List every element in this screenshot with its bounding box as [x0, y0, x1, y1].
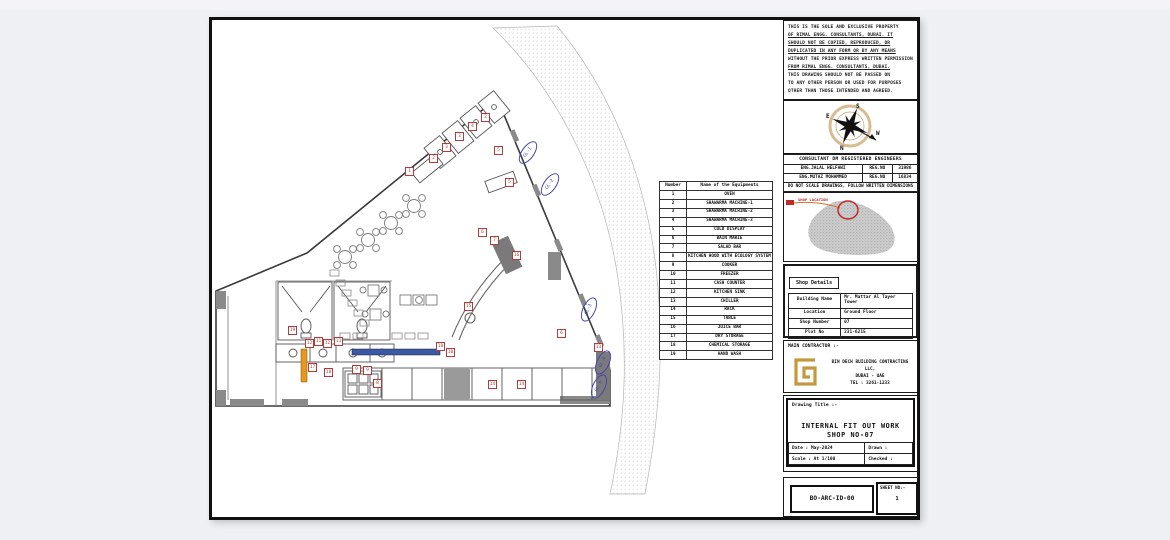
consultant-row: ENG.MUTAZ MOHAMMEDREG.NO16834: [784, 173, 918, 182]
equipment-name: JUICE BAR: [687, 324, 773, 333]
equipment-tag: 11: [314, 337, 323, 346]
equipment-tag: 5: [505, 178, 514, 187]
engineer-name: ENG.JALAL HELFAWI: [784, 164, 863, 173]
equipment-number: 14: [660, 306, 687, 315]
equipment-row: 13CHILLER: [660, 297, 773, 306]
equipment-tag: 12: [323, 339, 332, 348]
consultant-row: ENG.JALAL HELFAWIREG.NO31986: [784, 164, 918, 173]
shop-detail-value: Ground Floor: [841, 308, 913, 318]
equipment-name: SALAD BAR: [687, 244, 773, 253]
equipment-number: 17: [660, 333, 687, 342]
drawing-title-box: Drawing Title :- INTERNAL FIT OUT WORK S…: [783, 395, 918, 472]
disclaimer-line: DUPLICATED IN ANY FORM OR BY ANY MEANS: [788, 48, 913, 56]
equipment-name: SHAWARMA MACHINE-3: [687, 217, 773, 226]
equipment-number: 5: [660, 226, 687, 235]
contractor-logo-icon: [792, 357, 818, 387]
drawing-code: BO-ARC-ID-00: [790, 485, 874, 513]
equipment-name: RACK: [687, 306, 773, 315]
equipment-row: 5COLD DISPLAY: [660, 226, 773, 235]
equipment-name: COOKER: [687, 262, 773, 271]
glass-cloud-tag: GL-4: [592, 348, 615, 377]
shop-detail-label: Shop Number: [789, 318, 841, 328]
equipment-number: 12: [660, 289, 687, 298]
equipment-number: 11: [660, 280, 687, 289]
equipment-name: HAND WASH: [687, 351, 773, 360]
equipment-row: 11CASH COUNTER: [660, 280, 773, 289]
equipment-header-number: Number: [660, 182, 687, 191]
equipment-tag: 17: [308, 363, 317, 372]
shop-detail-row: Plot No231-6215: [789, 328, 913, 338]
shop-detail-row: Building NameMr. Mattar Al Tayer Tower: [789, 294, 913, 309]
shop-detail-value: 07: [841, 318, 913, 328]
equipment-row: 10FREEZER: [660, 271, 773, 280]
consultant-table: CONSULTANT DM REGISTERED ENGINEERS ENG.J…: [783, 154, 918, 192]
equipment-row: 14RACK: [660, 306, 773, 315]
equipment-tag: 5: [494, 146, 503, 155]
equipment-number: 18: [660, 342, 687, 351]
drawing-drawn: Drawn :: [865, 443, 913, 454]
equipment-number: 8: [660, 253, 687, 262]
equipment-number: 15: [660, 315, 687, 324]
equipment-number: 6: [660, 235, 687, 244]
disclaimer-line: OTHER THAN THOSE INTENDED AND AGREED.: [788, 88, 913, 96]
location-map: [784, 193, 915, 259]
disclaimer-line: WITHOUT THE PRIOR EXPRESS WRITTEN PERMIS…: [788, 56, 913, 64]
equipment-number: 3: [660, 208, 687, 217]
glass-cloud-tag: GL-3: [578, 295, 601, 324]
contractor-box: MAIN CONTRACTOR :- BIN DECH BUILDING CON…: [783, 340, 918, 393]
reg-label: REG.NO: [863, 164, 893, 173]
equipment-name: CASH COUNTER: [687, 280, 773, 289]
equipment-tag: 2: [481, 113, 490, 122]
equipment-number: 2: [660, 199, 687, 208]
sheet-no-value: 1: [878, 496, 916, 502]
equipment-tag: 3: [442, 143, 451, 152]
equipment-row: 19HAND WASH: [660, 351, 773, 360]
consultant-note: DO NOT SCALE DRAWINGS, FOLLOW WRITTEN DI…: [784, 182, 918, 191]
equipment-schedule-table: Number Name of the Equipments 1OVEN2SHAW…: [659, 181, 773, 360]
equipment-tag: 9: [352, 365, 361, 374]
equipment-header-row: Number Name of the Equipments: [660, 182, 773, 191]
equipment-row: 2SHAWARMA MACHINE-1: [660, 199, 773, 208]
glass-cloud-tag: GL-5: [588, 372, 611, 401]
shop-detail-label: Location: [789, 308, 841, 318]
equipment-tag: 8: [373, 379, 382, 388]
contractor-name: BIN DECH BUILDING CONTRACTING LLC,: [826, 359, 914, 373]
equipment-tag: 3: [455, 132, 464, 141]
shop-detail-label: Plot No: [789, 328, 841, 338]
equipment-row: 4SHAWARMA MACHINE-3: [660, 217, 773, 226]
equipment-name: SHAWARMA MACHINE-1: [687, 199, 773, 208]
drawing-title-line2: SHOP NO-07: [788, 431, 913, 440]
sheet-no-cell: SHEET NO:- 1: [876, 482, 918, 515]
equipment-tag: 13: [334, 337, 343, 346]
equipment-name: BAIN MARIE: [687, 235, 773, 244]
engineer-name: ENG.MUTAZ MOHAMMED: [784, 173, 863, 182]
contractor-tel: TEL : 3261-1233: [826, 380, 914, 387]
compass-east: E: [826, 113, 830, 120]
equipment-name: COLD DISPLAY: [687, 226, 773, 235]
compass-box: S E N W: [783, 100, 918, 154]
equipment-number: 19: [660, 351, 687, 360]
equipment-row: 16JUICE BAR: [660, 324, 773, 333]
equipment-tag: 6: [557, 329, 566, 338]
equipment-tag: 16: [512, 251, 521, 260]
reg-label: REG.NO: [863, 173, 893, 182]
equipment-number: 16: [660, 324, 687, 333]
glass-cloud-tag: GL-2: [537, 170, 563, 199]
disclaimer-line: FROM RIMAL ENGG. CONSULTANTS, DUBAI.: [788, 64, 913, 72]
drawing-title: INTERNAL FIT OUT WORK SHOP NO-07: [788, 422, 913, 440]
equipment-tag: 10: [446, 348, 455, 357]
equipment-row: 18CHEMICAL STORAGE: [660, 342, 773, 351]
equipment-name: DRY STORAGE: [687, 333, 773, 342]
equipment-row: 3SHAWARMA MACHINE-2: [660, 208, 773, 217]
drawing-scale: Scale : At 1/100: [789, 454, 865, 465]
shop-detail-row: Shop Number07: [789, 318, 913, 328]
equipment-header-name: Name of the Equipments: [687, 182, 773, 191]
equipment-name: CHEMICAL STORAGE: [687, 342, 773, 351]
map-label-marker: [786, 200, 794, 205]
equipment-row: 6BAIN MARIE: [660, 235, 773, 244]
consultant-note-row: DO NOT SCALE DRAWINGS, FOLLOW WRITTEN DI…: [784, 182, 918, 191]
consultant-header: CONSULTANT DM REGISTERED ENGINEERS: [784, 155, 918, 165]
shop-detail-row: LocationGround Floor: [789, 308, 913, 318]
equipment-row: 15TABLE: [660, 315, 773, 324]
equipment-tag: 7: [490, 236, 499, 245]
equipment-tag: 13: [594, 343, 603, 352]
equipment-tag: 6: [478, 228, 487, 237]
equipment-tag: 18: [324, 368, 333, 377]
equipment-name: KITCHEN SINK: [687, 289, 773, 298]
compass-south: S: [856, 103, 860, 110]
drawing-checked: Checked :: [865, 454, 913, 465]
equipment-name: KITCHEN HOOD WITH ECOLOGY SYSTEM: [687, 253, 773, 262]
shop-detail-label: Building Name: [789, 294, 841, 309]
reg-no: 31986: [892, 164, 917, 173]
equipment-number: 13: [660, 297, 687, 306]
equipment-tag: 2: [429, 154, 438, 163]
equipment-row: 7SALAD BAR: [660, 244, 773, 253]
equipment-name: FREEZER: [687, 271, 773, 280]
equipment-tag: 4: [468, 122, 477, 131]
compass-north: N: [840, 145, 844, 151]
reg-no: 16834: [892, 173, 917, 182]
equipment-number: 7: [660, 244, 687, 253]
annotation-layer: 1233425567161519121112131718998101014146…: [0, 0, 1170, 540]
disclaimer-line: THIS IS THE SOLE AND EXCLUSIVE PROPERTY: [788, 24, 913, 32]
equipment-tag: 1: [405, 167, 414, 176]
equipment-name: OVEN: [687, 191, 773, 200]
sheet-number-box: BO-ARC-ID-00 SHEET NO:- 1: [783, 477, 918, 517]
equipment-tag: 14: [488, 380, 497, 389]
shop-details-title: Shop Details: [789, 277, 839, 289]
equipment-name: SHAWARMA MACHINE-2: [687, 208, 773, 217]
contractor-label: MAIN CONTRACTOR :-: [788, 344, 839, 349]
equipment-tag: 12: [305, 339, 314, 348]
equipment-tag: 9: [363, 366, 372, 375]
shop-details-box: Shop Details Building NameMr. Mattar Al …: [783, 264, 918, 338]
equipment-name: TABLE: [687, 315, 773, 324]
equipment-row: 8KITCHEN HOOD WITH ECOLOGY SYSTEM: [660, 253, 773, 262]
equipment-tag: 10: [436, 342, 445, 351]
equipment-tag: 19: [288, 326, 297, 335]
disclaimer-line: THIS DRAWING SHOULD NOT BE PASSED ON: [788, 72, 913, 80]
shop-detail-value: 231-6215: [841, 328, 913, 338]
equipment-number: 4: [660, 217, 687, 226]
compass-west: W: [876, 130, 880, 137]
equipment-tag: 14: [517, 380, 526, 389]
equipment-number: 10: [660, 271, 687, 280]
disclaimer-line: OF RIMAL ENGG. CONSULTANTS, DUBAI. IT: [788, 32, 913, 40]
compass-rose-icon: S E N W: [784, 101, 915, 151]
glass-cloud-tag: GL-1: [515, 138, 541, 167]
disclaimer-box: THIS IS THE SOLE AND EXCLUSIVE PROPERTYO…: [783, 20, 918, 100]
equipment-row: 1OVEN: [660, 191, 773, 200]
equipment-row: 12KITCHEN SINK: [660, 289, 773, 298]
location-map-box: SHOP LOCATION: [783, 192, 918, 262]
sheet-no-label: SHEET NO:-: [880, 485, 905, 490]
drawing-date: Date : May-2024: [789, 443, 865, 454]
disclaimer-line: SHOULD NOT BE COPIED, REPRODUCED, OR: [788, 40, 913, 48]
disclaimer-line: TO ANY OTHER PERSON OR USED FOR PURPOSES: [788, 80, 913, 88]
drawing-title-line1: INTERNAL FIT OUT WORK: [788, 422, 913, 431]
equipment-number: 1: [660, 191, 687, 200]
equipment-name: CHILLER: [687, 297, 773, 306]
contractor-city: DUBAI - UAE: [826, 373, 914, 380]
drawing-title-label: Drawing Title :-: [792, 403, 837, 408]
equipment-row: 9COOKER: [660, 262, 773, 271]
equipment-row: 17DRY STORAGE: [660, 333, 773, 342]
equipment-tag: 15: [464, 302, 473, 311]
equipment-number: 9: [660, 262, 687, 271]
location-map-label: SHOP LOCATION: [798, 197, 828, 202]
shop-detail-value: Mr. Mattar Al Tayer Tower: [841, 294, 913, 309]
